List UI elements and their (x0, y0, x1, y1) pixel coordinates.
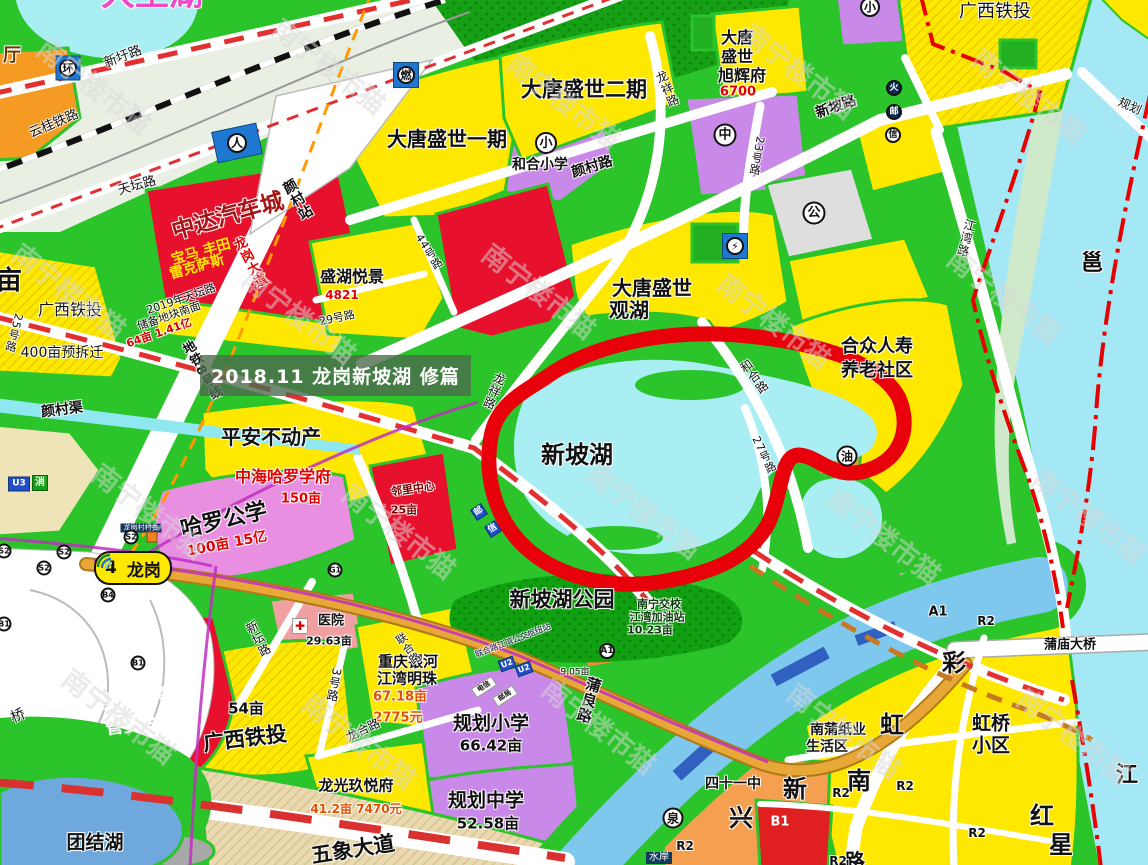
bus-stop-s2-icon: S2 (37, 561, 52, 576)
power-substation-icon: ⚡ (726, 237, 744, 255)
u2-utility-icon: U2 (497, 656, 516, 673)
u2-utility-icon: U2 (514, 661, 533, 678)
ring-road-icon: 环 (59, 59, 77, 77)
planning-map: 大王湖厅新圩路云桂铁路天坛路中达汽车城宝马 丰田雷克萨斯2019年天坛路储备地块… (0, 0, 1148, 865)
telecom-parcel-icon: 电信 (471, 676, 497, 698)
fire-icon: 火 (886, 80, 902, 96)
hospital-cross-icon: ✚ (292, 618, 308, 634)
zone-a1-icon: A1 (599, 643, 615, 659)
zone-g1-icon: G1 (328, 563, 343, 578)
zone-b4-icon: B4 (101, 588, 116, 603)
primary-school-icon: 小 (535, 132, 557, 154)
zone-b1-icon: B1 (0, 617, 12, 632)
metro-station-name: 龙岗 (127, 556, 161, 581)
gas-station-icon: 油 (837, 446, 858, 467)
map-icons-layer: 小小中公泉油人环燃⚡火邮信U3消✚S2S2S2S2B4B1B1G1A1U2U2邮… (0, 0, 1148, 865)
metro-station-badge: 4 龙岗 (94, 551, 172, 585)
u3-utility-icon: U3 (8, 477, 30, 492)
zone-b1-icon: B1 (131, 656, 146, 671)
post-office-icon: 邮局 (492, 685, 518, 707)
bus-stop-s2-icon: S2 (57, 545, 72, 560)
telecom-box-icon: 信 (484, 520, 502, 538)
post-icon: 邮 (886, 104, 902, 120)
primary-school-icon-2: 小 (860, 0, 880, 17)
middle-school-icon: 中 (714, 124, 737, 147)
map-title-overlay: 2018.11 龙岗新坡湖 修篇 (200, 355, 471, 396)
mascot-icon (147, 532, 158, 543)
gas-supply-icon: 燃 (397, 66, 415, 84)
fire-station-icon: 消 (32, 475, 48, 491)
telecom-icon: 信 (885, 127, 901, 143)
person-icon: 人 (227, 133, 247, 153)
bus-stop-s2-icon: S2 (124, 530, 139, 545)
spring-icon: 泉 (663, 808, 684, 829)
bus-stop-s2-icon: S2 (0, 544, 12, 559)
bus-depot-icon: 公 (803, 202, 826, 225)
post-box-icon: 邮 (470, 503, 488, 521)
